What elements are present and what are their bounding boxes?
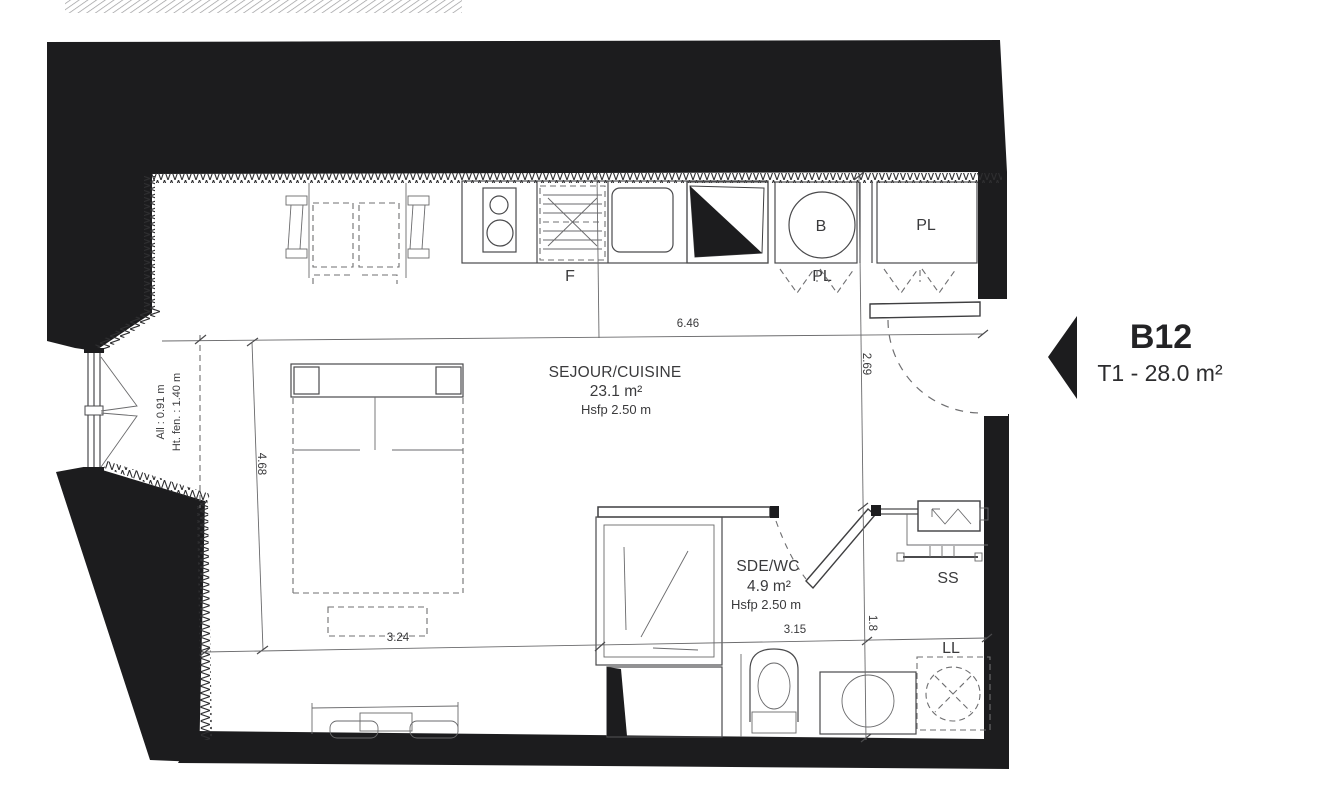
dim-bathroom-width: 3.15 (784, 624, 806, 636)
duct-wedge (690, 186, 762, 257)
dim-line-top (162, 334, 983, 341)
entry-door (870, 302, 980, 413)
table-half-left (313, 203, 353, 267)
bathroom-lower-wall (607, 667, 627, 736)
bathroom-wall-cap (770, 506, 779, 518)
towel-bar-hooks (930, 546, 954, 557)
window: All : 0.91 m Ht. fen. : 1.40 m (84, 348, 183, 472)
living-ceiling: Hsfp 2.50 m (581, 402, 651, 417)
bathroom-area: 4.9 m² (747, 578, 791, 595)
window-casement-top (101, 357, 137, 411)
washbasin (820, 672, 916, 734)
dim-line-entry (859, 176, 866, 740)
bed (291, 364, 463, 636)
chair-left (286, 196, 307, 258)
window-sill-label: All : 0.91 m (155, 384, 167, 439)
floor-plan-svg: All : 0.91 m Ht. fen. : 1.40 m F (0, 0, 1330, 800)
entry-jamb-bottom (977, 411, 1008, 416)
unit-label: B12 T1 - 28.0 m² (1048, 316, 1223, 399)
toilet-bowl (758, 663, 790, 709)
washing-machine: LL (917, 640, 990, 730)
washer-cross (935, 676, 971, 712)
insulation-hatching (93, 173, 1002, 740)
washbasin-bowl (842, 675, 894, 727)
washbasin-counter (820, 672, 916, 734)
hob-burner-large (487, 220, 513, 246)
shower-line (624, 547, 626, 630)
washer-label: LL (942, 640, 960, 657)
bottom-wall (178, 731, 1009, 769)
unit-arrow-icon (1048, 316, 1077, 399)
towel-dryer: SS (881, 501, 988, 587)
entry-closets: B PL PL (775, 182, 977, 293)
folding-door-symbols (780, 269, 956, 293)
dim-bathroom-depth: 1.8 (866, 615, 878, 631)
toilet (750, 649, 798, 733)
left-upper-insulation (144, 176, 155, 314)
entry-door-leaf (870, 302, 980, 318)
entry-jamb-top (977, 299, 1008, 304)
bathroom-name: SDE/WC (736, 558, 799, 575)
water-heater-label: B (816, 218, 827, 235)
bed-outline (293, 398, 463, 593)
top-edge-hatch-artifact (65, 0, 462, 13)
bed-bench (328, 607, 427, 636)
bathroom-door-stub (871, 505, 881, 516)
towel-bar-end-left (897, 553, 904, 561)
window-cap-top (84, 348, 104, 353)
hob (483, 188, 516, 252)
window-cap-bottom (84, 467, 104, 472)
floor-plan-page: All : 0.91 m Ht. fen. : 1.40 m F (0, 0, 1330, 800)
right-upper-wall (978, 172, 1007, 303)
dim-entry-depth: 2.69 (860, 353, 872, 375)
bathroom-door-leaf (806, 509, 875, 588)
dimensions: 6.46 4.68 3.24 3.15 2.69 1.8 (162, 172, 992, 742)
shower-diagonal (641, 551, 688, 637)
dim-living-depth: 4.68 (255, 453, 267, 475)
bed-pillow-right (436, 367, 461, 394)
sink (612, 188, 673, 252)
shower-drain (653, 648, 698, 650)
kitchen-counter: F (462, 181, 768, 285)
towel-dryer-body (918, 501, 980, 531)
unit-code: B12 (1130, 318, 1192, 356)
towel-dryer-label: SS (937, 570, 958, 587)
dim-living-width: 6.46 (677, 318, 699, 330)
unit-type-area: T1 - 28.0 m² (1097, 360, 1223, 386)
bed-pillow-left (294, 367, 319, 394)
bed-headboard (291, 364, 463, 397)
dim-line-left (252, 342, 263, 650)
bathroom-wall-top (598, 507, 770, 517)
closet-wall-label: PL (916, 217, 936, 234)
toilet-bowl-outline (750, 649, 798, 722)
closet-entry-label: PL (812, 268, 832, 285)
window-transom (85, 406, 103, 415)
chair-right (408, 196, 429, 258)
right-lower-wall (984, 414, 1009, 743)
bathroom-ceiling: Hsfp 2.50 m (731, 597, 801, 612)
living-area: 23.1 m² (590, 383, 643, 400)
window-casement-bottom (101, 413, 137, 467)
window-height-label: Ht. fen. : 1.40 m (171, 373, 183, 451)
technical-duct (687, 182, 768, 263)
left-lower-wall (56, 466, 205, 762)
dim-attache-kitchen (597, 176, 599, 338)
hob-burner-small (490, 196, 508, 214)
top-left-wall (47, 40, 1007, 351)
fridge-label: F (565, 268, 575, 285)
toilet-base (752, 712, 796, 733)
shower-tray (604, 525, 714, 657)
fridge: F (540, 186, 605, 285)
dim-living-bottom: 3.24 (387, 632, 410, 644)
table-half-right (359, 203, 399, 267)
table-extension (313, 275, 397, 284)
dining-set (286, 183, 429, 284)
living-name: SEJOUR/CUISINE (549, 364, 682, 381)
bathroom: LL SS (596, 501, 990, 737)
